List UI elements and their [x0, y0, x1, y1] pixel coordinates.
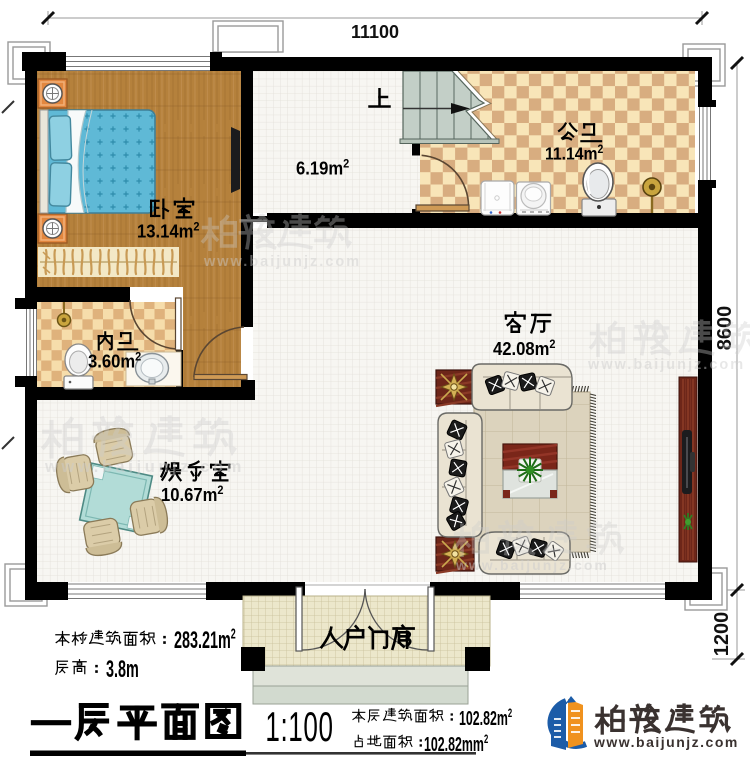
svg-text:10.67m2: 10.67m2	[161, 483, 224, 505]
svg-text:11.14m2: 11.14m2	[545, 143, 603, 163]
svg-text:283.21m2: 283.21m2	[174, 625, 236, 654]
svg-text:13.14m2: 13.14m2	[137, 220, 200, 242]
svg-text:3.8m: 3.8m	[106, 656, 139, 683]
svg-text:www.baijunjz.com: www.baijunjz.com	[593, 734, 739, 750]
svg-text:1200: 1200	[711, 612, 733, 657]
svg-text:www.baijunjz.com: www.baijunjz.com	[587, 357, 745, 373]
svg-text:1:100: 1:100	[265, 704, 333, 751]
svg-text:www.baijunjz.com: www.baijunjz.com	[455, 557, 609, 573]
svg-text:102.82m2: 102.82m2	[459, 707, 512, 730]
svg-text:42.08m2: 42.08m2	[493, 337, 556, 359]
svg-text:www.baijunjz.com: www.baijunjz.com	[44, 458, 245, 476]
svg-text:11100: 11100	[351, 22, 399, 42]
svg-text:6.19m2: 6.19m2	[296, 157, 349, 179]
svg-text:www.baijunjz.com: www.baijunjz.com	[203, 254, 361, 270]
svg-text:3.60m2: 3.60m2	[88, 350, 141, 372]
svg-text:102.82mm2: 102.82mm2	[424, 733, 488, 756]
